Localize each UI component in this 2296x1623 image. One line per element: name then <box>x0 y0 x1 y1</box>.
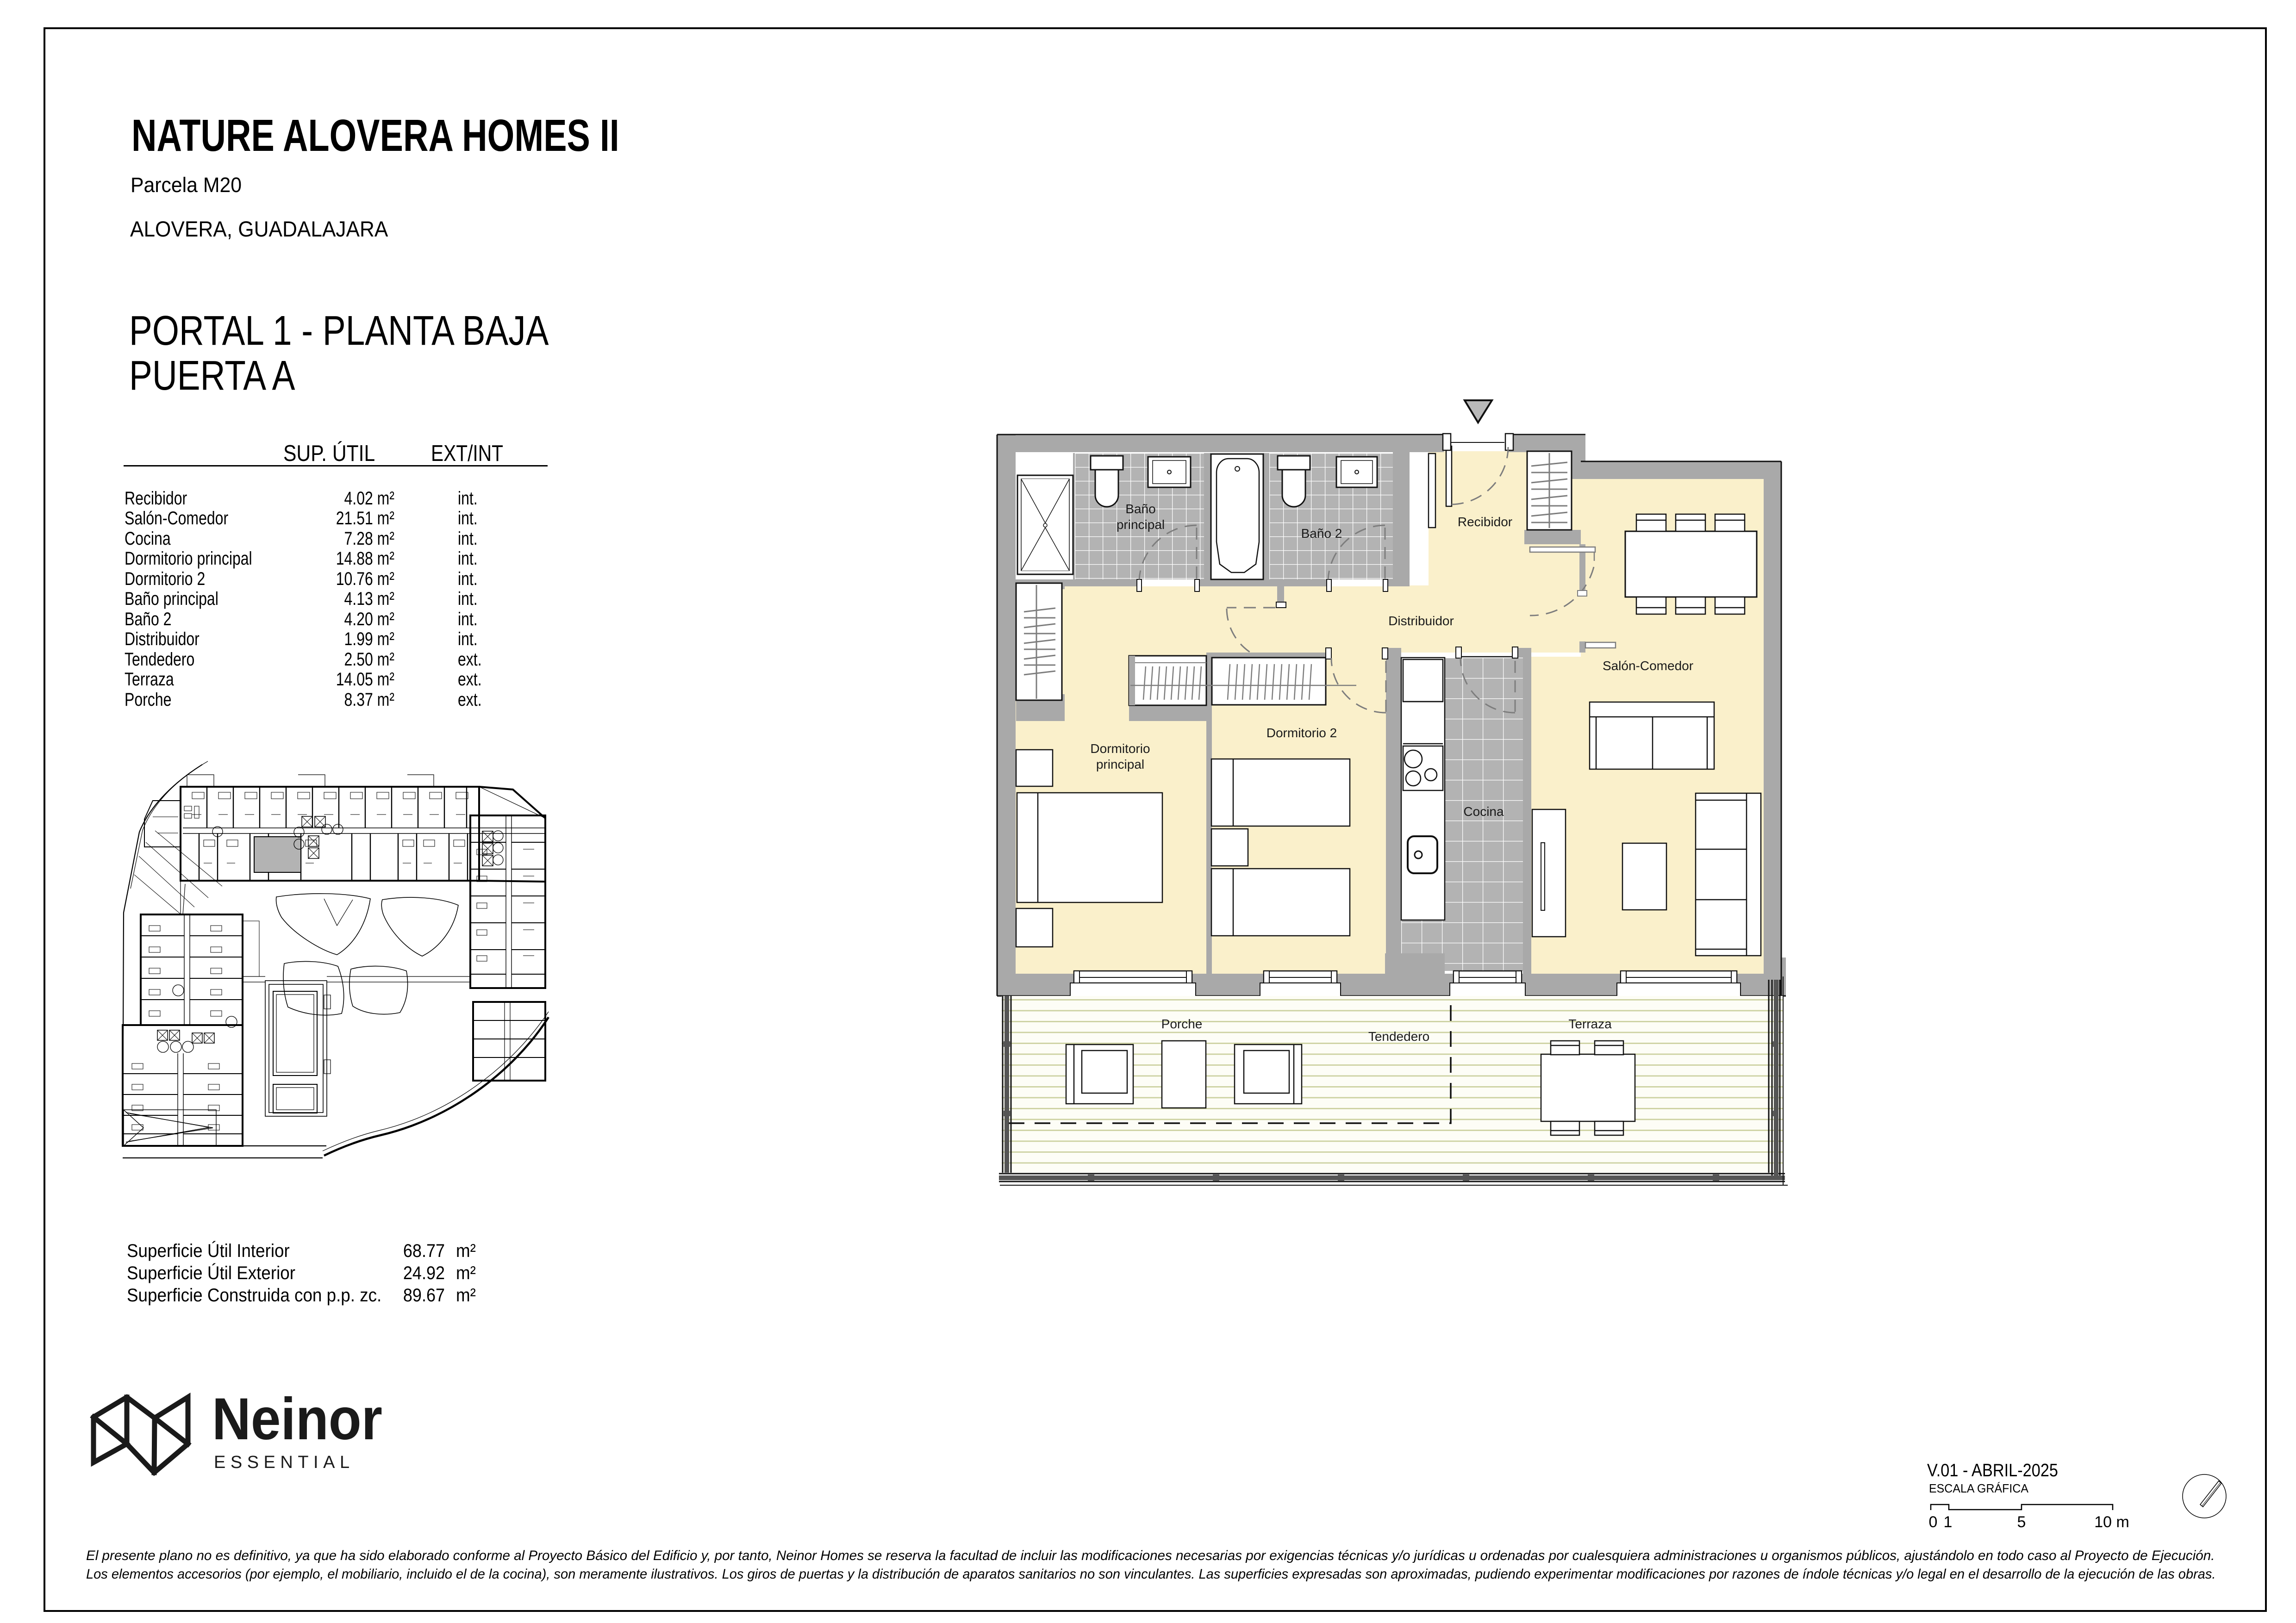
svg-text:Dormitorio 2: Dormitorio 2 <box>1267 726 1337 740</box>
svg-text:Recibidor: Recibidor <box>1458 515 1512 529</box>
svg-text:Porche: Porche <box>1161 1017 1203 1031</box>
svg-text:Baño 2: Baño 2 <box>1301 526 1342 541</box>
svg-text:1: 1 <box>1944 1513 1953 1531</box>
svg-text:Salón-Comedor: Salón-Comedor <box>1603 659 1693 673</box>
svg-text:Tendedero: Tendedero <box>1368 1029 1429 1044</box>
svg-text:0: 0 <box>1929 1513 1938 1531</box>
svg-text:Neinor: Neinor <box>212 1386 382 1452</box>
svg-text:Terraza: Terraza <box>1568 1017 1612 1031</box>
svg-text:principal: principal <box>1117 517 1165 532</box>
svg-text:Baño: Baño <box>1125 502 1155 516</box>
svg-text:Distribuidor: Distribuidor <box>1388 614 1454 628</box>
svg-text:10 m: 10 m <box>2094 1513 2129 1531</box>
svg-text:ESSENTIAL: ESSENTIAL <box>214 1453 355 1472</box>
svg-text:Cocina: Cocina <box>1463 804 1504 819</box>
svg-text:5: 5 <box>2017 1513 2026 1531</box>
svg-text:principal: principal <box>1096 757 1144 771</box>
svg-text:Dormitorio: Dormitorio <box>1090 741 1150 756</box>
